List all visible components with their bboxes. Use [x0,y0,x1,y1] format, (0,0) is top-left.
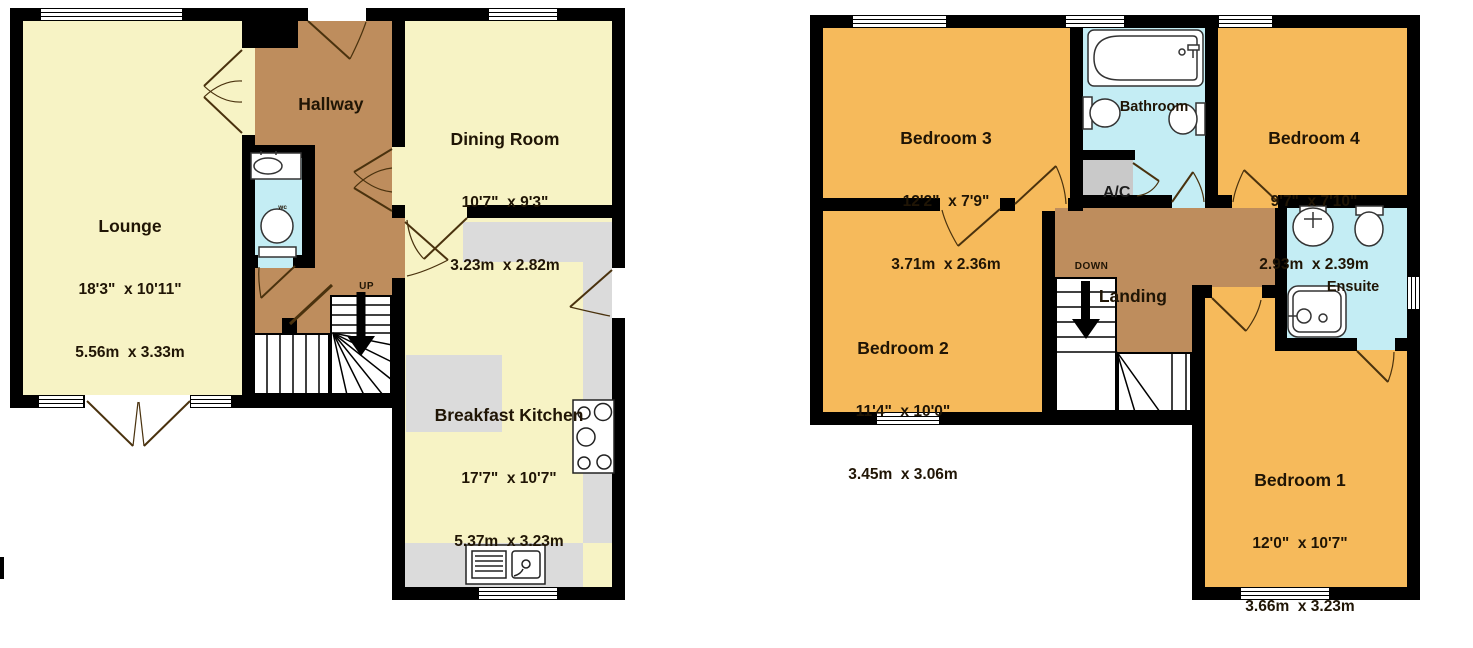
room-name: Bedroom 2 [848,338,957,359]
window [852,15,947,28]
wall [1395,338,1407,351]
label-dining-room: Dining Room 10'7" x 9'3" 3.23m x 2.82m [450,87,559,318]
room-name: A/C [1103,184,1131,201]
window [1218,15,1273,28]
room-dims-metric: 3.71m x 2.36m [891,254,1000,275]
label-breakfast-kitchen: Breakfast Kitchen 17'7" x 10'7" 5.37m x … [435,363,584,594]
room-name: Bedroom 3 [891,128,1000,149]
wall [10,8,23,408]
room-name: Breakfast Kitchen [435,405,584,426]
room-dims-imperial: 11'4" x 10'0" [848,401,957,422]
stair-newel-post [282,318,297,333]
wall [1275,338,1357,351]
room-dims-imperial: 18'3" x 10'11" [75,279,184,300]
wall [1205,15,1218,208]
stairs-direction: UP [359,281,374,292]
wall [392,205,405,218]
wall [293,255,315,268]
room-name: Landing [1099,286,1167,306]
wall [1218,195,1232,208]
label-ac-closet: A/C [1086,169,1131,217]
staircase-ff-winder [1117,352,1192,412]
wall [302,145,315,268]
room-dims-imperial: 12'2" x 7'9" [891,191,1000,212]
window [1407,276,1420,310]
window [190,395,232,408]
label-wc: wc [271,197,287,218]
window [1065,15,1125,28]
wall [1192,285,1212,298]
room-name: Dining Room [450,129,559,150]
wall [392,8,405,147]
label-landing: Landing [1081,265,1167,329]
label-stairs-up: UP [346,272,374,302]
staircase-gf-upper-flight [330,295,392,395]
wall [1042,211,1055,412]
door-opening-front [308,8,366,21]
room-name: Bathroom [1120,99,1188,115]
room-dims-imperial: 9'7" x 7'10" [1259,191,1368,212]
label-bedroom1: Bedroom 1 12'0" x 10'7" 3.66m x 3.23m [1245,428,1354,648]
room-dims-metric: 5.56m x 3.33m [75,342,184,363]
room-name: wc [278,204,287,211]
wall [1070,15,1083,158]
wall [1000,198,1015,211]
wall [1192,285,1205,600]
room-dims-metric: 3.66m x 3.23m [1245,596,1354,617]
staircase-gf-lower-flight [253,333,330,395]
room-dims-metric: 3.45m x 3.06m [848,464,957,485]
kitchen-counter-right [583,222,612,543]
room-name: Bedroom 1 [1245,470,1354,491]
room-dims-imperial: 17'7" x 10'7" [435,468,584,489]
window [488,8,558,21]
wall [810,15,823,425]
window [40,8,183,21]
room-name: Hallway [298,94,363,114]
room-name: Ensuite [1327,279,1379,295]
label-bathroom: Bathroom [1104,85,1189,130]
label-hallway: Hallway [281,73,364,137]
wall [392,278,405,600]
floorplan-canvas: Lounge 18'3" x 10'11" 5.56m x 3.33m Hall… [0,0,1473,648]
door-opening-kitchen-back [612,268,625,318]
label-lounge: Lounge 18'3" x 10'11" 5.56m x 3.33m [75,174,184,405]
room-dims-metric: 5.37m x 3.23m [435,531,584,552]
label-ensuite: Ensuite [1311,265,1380,310]
label-bedroom2: Bedroom 2 11'4" x 10'0" 3.45m x 3.06m [848,296,957,527]
wall [1083,150,1135,160]
label-bedroom3: Bedroom 3 12'2" x 7'9" 3.71m x 2.36m [891,86,1000,317]
room-dims-imperial: 10'7" x 9'3" [450,192,559,213]
wall [242,255,258,268]
room-dims-metric: 3.23m x 2.82m [450,255,559,276]
room-name: Lounge [75,216,184,237]
room-dims-imperial: 12'0" x 10'7" [1245,533,1354,554]
edge-artifact [0,557,4,579]
wall-porch-block [250,8,298,48]
room-name: Bedroom 4 [1259,128,1368,149]
wall [242,8,255,48]
